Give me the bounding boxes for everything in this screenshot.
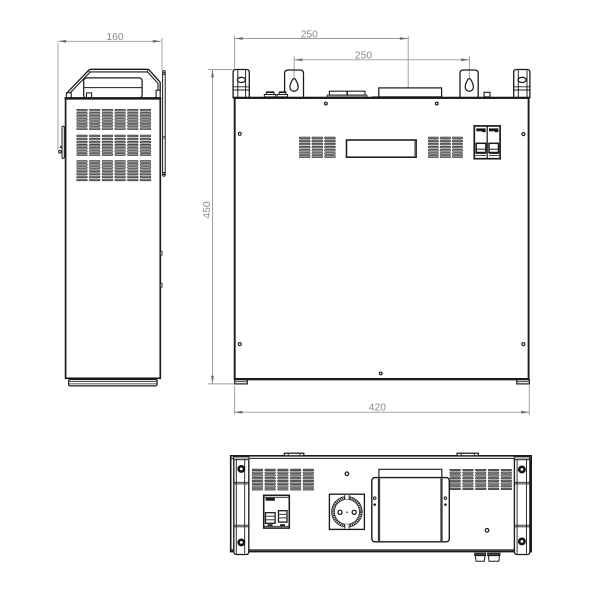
svg-text:160: 160 <box>106 32 123 43</box>
svg-text:420: 420 <box>369 403 386 414</box>
svg-text:450: 450 <box>202 201 213 218</box>
svg-text:250: 250 <box>301 29 318 40</box>
svg-text:250: 250 <box>355 51 372 62</box>
